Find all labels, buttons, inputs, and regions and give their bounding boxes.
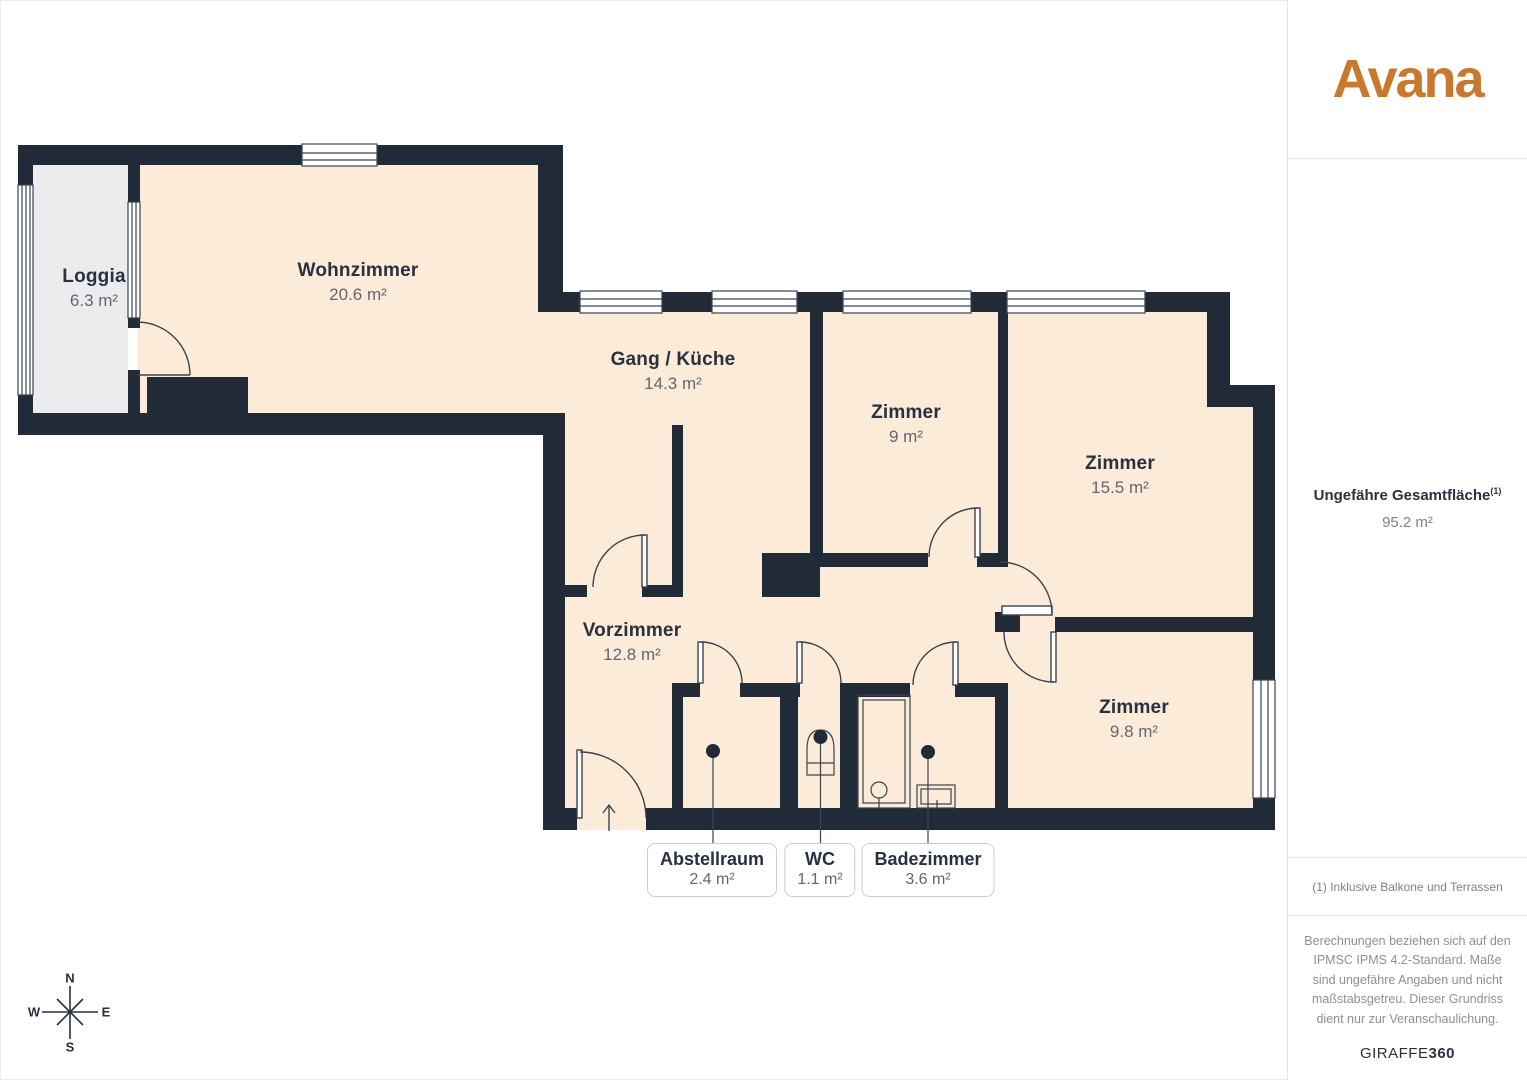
room-label-wohnzimmer: Wohnzimmer 20.6 m²	[298, 260, 419, 305]
room-name: Vorzimmer	[583, 620, 682, 642]
avana-logo: Avana	[1332, 48, 1482, 110]
window-gang-top	[580, 291, 662, 313]
callout-abstellraum: Abstellraum 2.4 m²	[647, 843, 777, 897]
room-name: Zimmer	[1099, 697, 1169, 719]
info-sidebar: Avana Ungefähre Gesamtfläche(1) 95.2 m² …	[1287, 0, 1527, 1080]
window-gang-top-2	[712, 291, 797, 313]
logo-block: Avana	[1288, 0, 1527, 159]
room-name: Loggia	[62, 266, 125, 288]
callout-name: Badezimmer	[874, 849, 981, 870]
room-area: 14.3 m²	[611, 374, 736, 394]
callout-area: 2.4 m²	[660, 871, 764, 889]
window-zimmer9-top	[843, 291, 971, 313]
callout-badezimmer: Badezimmer 3.6 m²	[861, 843, 994, 897]
watermark-bold: 360	[1428, 1045, 1455, 1062]
total-area-label: Ungefähre Gesamtfläche(1)	[1314, 486, 1502, 504]
room-label-vorzimmer: Vorzimmer 12.8 m²	[583, 620, 682, 665]
total-area-label-text: Ungefähre Gesamtfläche	[1314, 487, 1491, 504]
room-label-zimmer-9: Zimmer 9 m²	[871, 402, 941, 447]
floor-areas	[33, 165, 1253, 830]
callout-area: 3.6 m²	[874, 871, 981, 889]
window-zimmer98-right	[1253, 680, 1275, 798]
window-loggia-divider	[128, 202, 140, 318]
callout-area: 1.1 m²	[797, 871, 842, 889]
compass-south-label: S	[66, 1040, 75, 1055]
window-zimmer15-top	[1007, 291, 1145, 313]
giraffe360-watermark: GIRAFFE360	[1303, 1042, 1512, 1065]
window-loggia-left-glazing	[18, 185, 33, 395]
compass-west-label: W	[28, 1005, 40, 1020]
room-name: Wohnzimmer	[298, 260, 419, 282]
room-label-loggia: Loggia 6.3 m²	[62, 266, 125, 311]
room-name: Zimmer	[1085, 453, 1155, 475]
callout-wc: WC 1.1 m²	[784, 843, 855, 897]
room-area: 9 m²	[871, 427, 941, 447]
room-label-zimmer-15: Zimmer 15.5 m²	[1085, 453, 1155, 498]
total-area-superscript: (1)	[1490, 486, 1501, 496]
window-wohnzimmer-top	[302, 144, 377, 166]
callout-name: WC	[797, 849, 842, 870]
room-area: 15.5 m²	[1085, 478, 1155, 498]
total-area-block: Ungefähre Gesamtfläche(1) 95.2 m²	[1288, 159, 1527, 857]
compass-east-label: E	[102, 1005, 111, 1020]
wc-anchor-dot	[814, 730, 828, 744]
disclaimer-text: Berechnungen beziehen sich auf den IPMSC…	[1303, 932, 1512, 1029]
total-area-value: 95.2 m²	[1382, 514, 1433, 531]
room-area: 9.8 m²	[1099, 722, 1169, 742]
badezimmer-anchor-dot	[921, 745, 935, 759]
callout-name: Abstellraum	[660, 849, 764, 870]
room-area: 6.3 m²	[62, 291, 125, 311]
room-name: Zimmer	[871, 402, 941, 424]
legal-block: Berechnungen beziehen sich auf den IPMSC…	[1288, 915, 1527, 1080]
room-area: 20.6 m²	[298, 285, 419, 305]
abstellraum-anchor-dot	[706, 744, 720, 758]
room-label-gang-kueche: Gang / Küche 14.3 m²	[611, 349, 736, 394]
room-area: 12.8 m²	[583, 645, 682, 665]
compass-icon	[42, 986, 98, 1039]
watermark-regular: GIRAFFE	[1360, 1045, 1429, 1062]
compass-north-label: N	[65, 971, 74, 986]
floorplan-drawing	[0, 0, 1287, 1080]
room-label-zimmer-98: Zimmer 9.8 m²	[1099, 697, 1169, 742]
footnote: (1) Inklusive Balkone und Terrassen	[1288, 857, 1527, 915]
room-name: Gang / Küche	[611, 349, 736, 371]
